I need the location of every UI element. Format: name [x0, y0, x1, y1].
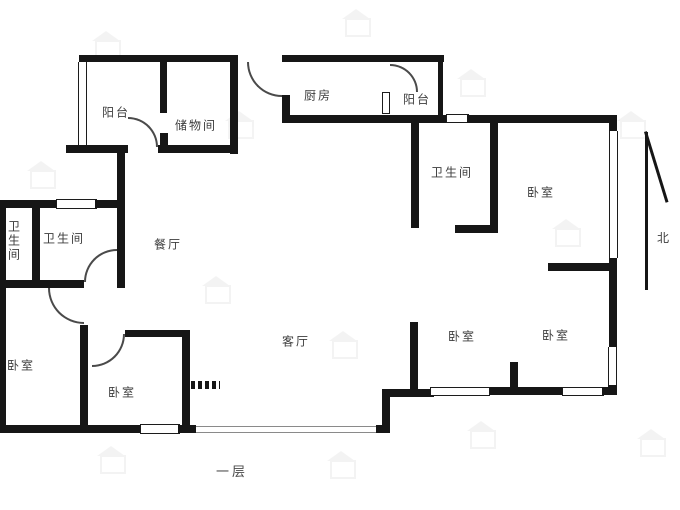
watermark-icon [555, 228, 581, 247]
watermark-icon [470, 430, 496, 449]
watermark-icon [640, 438, 666, 457]
room-label-living-room: 客厅 [282, 333, 310, 350]
window [140, 424, 180, 434]
wall [411, 122, 419, 228]
window [430, 387, 490, 396]
watermark-icon [30, 170, 56, 189]
wall [117, 153, 125, 288]
wall [490, 387, 564, 395]
wall [95, 200, 123, 208]
door-arc [128, 117, 158, 147]
room-label-balcony-right: 阳台 [403, 91, 431, 108]
wall [282, 115, 448, 123]
watermark-icon [330, 460, 356, 479]
floorplan-canvas: 北 一层 阳台储物间厨房阳台卫生间卧室卫生间卫生间餐厅卧室卧室客厅卧室卧室 [0, 0, 680, 510]
wall [0, 425, 142, 433]
watermark-icon [100, 455, 126, 474]
door-arc [84, 249, 117, 282]
wall [125, 330, 190, 337]
cabinet-hatch [191, 381, 220, 389]
wall [602, 387, 617, 395]
wall [182, 330, 190, 433]
window [56, 199, 97, 209]
wall [230, 55, 238, 154]
wall [80, 325, 88, 433]
room-label-bedroom-bottom-mid: 卧室 [448, 328, 476, 345]
window [562, 387, 604, 396]
room-label-bedroom-far-left: 卧室 [7, 357, 35, 374]
room-label-bathroom-right: 卫生间 [431, 164, 473, 181]
room-label-kitchen: 厨房 [304, 87, 332, 104]
door-arc [92, 334, 125, 367]
wall [158, 145, 238, 153]
wall [376, 425, 390, 433]
door-arc [247, 62, 282, 97]
window [446, 114, 469, 123]
room-label-bedroom-center: 卧室 [108, 384, 136, 401]
wall [160, 57, 167, 113]
room-label-balcony-left: 阳台 [102, 104, 130, 121]
wall [548, 263, 617, 271]
floor-caption: 一层 [216, 461, 248, 480]
wall [455, 225, 498, 233]
wall [410, 322, 418, 397]
window [196, 426, 378, 433]
wall [0, 280, 84, 288]
window [608, 347, 617, 386]
wall [0, 200, 58, 208]
wall [282, 55, 444, 62]
room-label-bathroom-left-small: 卫生间 [6, 220, 23, 262]
room-label-bedroom-bottom-right: 卧室 [542, 327, 570, 344]
wall [438, 62, 443, 115]
watermark-icon [205, 285, 231, 304]
wall [609, 115, 617, 132]
wall [178, 425, 196, 433]
door-arc [390, 64, 418, 92]
watermark-icon [620, 120, 646, 139]
wall [609, 258, 617, 348]
watermark-icon [460, 78, 486, 97]
north-label: 北 [657, 229, 669, 246]
room-label-bathroom-left: 卫生间 [43, 230, 85, 247]
wall [510, 362, 518, 392]
room-label-storage-room: 储物间 [175, 117, 217, 134]
wall [66, 145, 128, 153]
door-arc [48, 288, 84, 324]
room-label-bedroom-top-right: 卧室 [527, 184, 555, 201]
wall [32, 208, 40, 282]
window [609, 131, 618, 258]
room-label-dining-room: 餐厅 [154, 236, 182, 253]
watermark-icon [332, 340, 358, 359]
window [78, 62, 87, 146]
north-arrow [645, 132, 648, 290]
wall [490, 122, 498, 233]
wall [160, 133, 168, 146]
wall [79, 55, 238, 62]
watermark-icon [345, 18, 371, 37]
door-leaf [382, 92, 390, 114]
